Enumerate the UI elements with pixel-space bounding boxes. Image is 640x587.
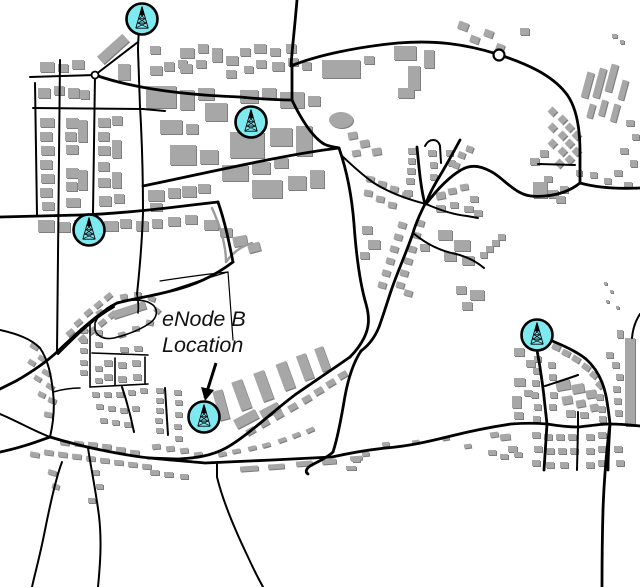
building (152, 444, 160, 450)
building (581, 72, 594, 99)
building (310, 170, 324, 188)
building (185, 215, 197, 224)
building (96, 484, 103, 489)
building (532, 460, 540, 466)
map-figure: eNode B Location (0, 0, 640, 587)
building (93, 300, 102, 309)
building (160, 120, 182, 134)
building (92, 392, 99, 397)
road (217, 463, 263, 587)
building (398, 88, 414, 98)
building (262, 442, 271, 448)
building (592, 68, 607, 99)
building (180, 48, 194, 58)
road-network (0, 0, 640, 587)
building (118, 362, 126, 368)
building (66, 145, 78, 154)
building (97, 318, 106, 327)
building (306, 427, 315, 434)
building (566, 410, 575, 417)
building (561, 395, 572, 405)
road (32, 462, 62, 587)
building (180, 64, 192, 73)
building (347, 131, 357, 139)
building (438, 230, 452, 240)
road (35, 83, 37, 215)
building (399, 269, 408, 277)
building (325, 378, 336, 388)
building (359, 139, 369, 147)
building (548, 123, 558, 133)
building (524, 390, 532, 396)
building (104, 392, 111, 397)
building (41, 174, 54, 183)
building (558, 448, 566, 454)
building (98, 132, 109, 141)
building (80, 338, 87, 343)
building (575, 399, 585, 407)
building (240, 48, 250, 56)
building (44, 449, 54, 455)
building (175, 412, 182, 417)
building (262, 88, 276, 98)
building (313, 386, 324, 396)
building (232, 448, 241, 454)
building (630, 160, 637, 167)
building (408, 66, 420, 90)
building (512, 396, 521, 408)
building (120, 408, 127, 413)
building (198, 184, 210, 193)
building (98, 146, 110, 155)
building (371, 147, 381, 155)
building (533, 416, 540, 422)
building (408, 158, 415, 164)
building (612, 362, 619, 368)
building (112, 420, 119, 425)
building (548, 107, 558, 117)
building (272, 62, 284, 71)
building (632, 134, 639, 140)
building (196, 60, 206, 68)
building (120, 347, 128, 352)
building (83, 308, 92, 317)
building (457, 151, 466, 159)
building (226, 70, 236, 78)
building (65, 132, 76, 141)
building (198, 44, 208, 53)
building (464, 444, 471, 449)
building (156, 408, 163, 413)
building (170, 145, 196, 165)
building (102, 444, 111, 450)
building (156, 428, 163, 433)
building (80, 90, 89, 99)
building (546, 462, 554, 468)
building (132, 360, 140, 366)
building (598, 406, 605, 412)
building (80, 348, 87, 353)
enodeb-marker-enodeb-3[interactable] (74, 215, 105, 246)
building (614, 170, 622, 176)
roundabout-icon (494, 50, 505, 61)
building (532, 432, 540, 438)
building (186, 124, 198, 134)
junction-node-icon (92, 72, 99, 79)
road (88, 448, 101, 587)
building (142, 464, 151, 469)
building (38, 220, 54, 232)
building (457, 21, 469, 32)
building (406, 178, 414, 184)
road (33, 108, 165, 111)
building (362, 226, 372, 234)
building (448, 187, 457, 194)
building (606, 352, 613, 358)
building (397, 221, 406, 229)
building (544, 176, 552, 182)
building (500, 433, 511, 440)
building (560, 462, 568, 468)
building (124, 422, 131, 427)
building (40, 132, 52, 141)
building (514, 348, 524, 356)
building (617, 330, 623, 338)
building (66, 182, 77, 191)
building (150, 46, 160, 54)
building (73, 318, 82, 327)
building (175, 436, 182, 441)
building (534, 404, 541, 410)
building (112, 140, 121, 158)
building (78, 170, 87, 190)
building (248, 445, 257, 451)
building (430, 174, 437, 180)
building (33, 375, 42, 383)
building (360, 252, 369, 259)
road (632, 314, 640, 338)
building (231, 379, 252, 411)
building (314, 346, 331, 372)
building (200, 150, 218, 164)
building (486, 246, 493, 252)
building (490, 431, 499, 437)
building (450, 202, 458, 208)
building (99, 196, 111, 206)
building (40, 118, 54, 127)
building (532, 380, 539, 386)
building (30, 451, 40, 457)
road (57, 60, 60, 352)
building (610, 290, 613, 293)
building (120, 293, 128, 299)
building (95, 378, 102, 383)
building (40, 188, 52, 197)
enodeb-marker-enodeb-1[interactable] (127, 4, 158, 35)
building (288, 176, 306, 190)
building (616, 306, 619, 309)
building (27, 359, 36, 367)
building (618, 80, 629, 101)
building (244, 66, 253, 73)
building (571, 383, 584, 394)
building (156, 398, 163, 403)
building (155, 418, 162, 423)
building (460, 183, 469, 190)
building (98, 162, 109, 171)
building (140, 388, 147, 393)
building (80, 370, 87, 375)
building (580, 412, 588, 418)
building (270, 128, 292, 146)
building (626, 120, 634, 126)
building (180, 474, 188, 479)
building (104, 360, 112, 366)
building (66, 118, 78, 128)
building (540, 150, 548, 157)
building (480, 252, 487, 258)
building (556, 434, 564, 440)
building (116, 392, 123, 397)
building (268, 463, 284, 469)
building (301, 394, 312, 404)
building (394, 46, 416, 60)
building (492, 240, 499, 246)
building (212, 48, 222, 62)
building (42, 202, 54, 210)
building (329, 112, 353, 128)
building (500, 454, 508, 459)
building (270, 48, 280, 56)
building (97, 34, 129, 64)
building (599, 416, 606, 422)
building (531, 392, 538, 398)
building (586, 434, 594, 440)
building (558, 115, 568, 125)
building (72, 454, 81, 460)
annotation-line1: eNode B (162, 306, 246, 332)
building (322, 60, 360, 78)
building (104, 374, 112, 380)
building (526, 360, 535, 367)
road (165, 388, 168, 435)
building (568, 434, 576, 440)
building (546, 448, 554, 454)
building (534, 446, 542, 452)
enodeb-marker-enodeb-2[interactable] (236, 107, 267, 138)
road (92, 353, 148, 355)
building (514, 452, 522, 457)
building (368, 240, 380, 249)
building (118, 376, 126, 382)
building (558, 147, 568, 157)
building (78, 120, 87, 142)
building (403, 289, 412, 297)
building (589, 403, 598, 411)
road (30, 75, 95, 77)
building (620, 148, 628, 154)
building (352, 149, 361, 156)
building (88, 498, 95, 503)
building (114, 194, 124, 203)
building (586, 103, 595, 118)
building (381, 269, 390, 277)
building (112, 116, 122, 125)
building (205, 103, 227, 121)
building (565, 155, 575, 165)
building (462, 302, 472, 310)
building (393, 233, 402, 241)
building (38, 88, 50, 98)
building (428, 150, 436, 156)
building (95, 366, 102, 371)
building (116, 447, 125, 453)
building (128, 390, 135, 395)
building (620, 40, 624, 44)
building (388, 201, 397, 208)
building (612, 34, 617, 38)
road (93, 75, 95, 213)
building (407, 168, 415, 174)
annotation-line2: Location (162, 332, 246, 358)
building (302, 62, 311, 70)
building (308, 96, 320, 106)
building (108, 406, 115, 411)
building (382, 442, 389, 447)
building (58, 222, 70, 232)
enodeb-marker-enodeb-4[interactable] (189, 402, 220, 433)
building (514, 412, 523, 419)
building (586, 448, 594, 454)
building (548, 362, 555, 368)
building (488, 450, 496, 455)
building (95, 342, 102, 347)
building (66, 168, 78, 178)
building (616, 460, 624, 466)
building (508, 446, 517, 452)
building (58, 452, 67, 458)
building (152, 219, 162, 228)
building (204, 220, 218, 230)
building (134, 346, 142, 351)
building (604, 282, 607, 285)
building (114, 460, 123, 466)
building (148, 190, 164, 201)
building (385, 257, 394, 265)
building (548, 139, 558, 149)
building (226, 56, 238, 65)
building (377, 281, 386, 289)
building (549, 374, 556, 380)
building (454, 240, 470, 251)
building (514, 378, 525, 386)
map-canvas (0, 0, 640, 587)
building (364, 189, 373, 196)
building (96, 404, 103, 409)
building (168, 188, 180, 198)
building (66, 198, 80, 207)
building (606, 300, 609, 303)
enodeb-marker-enodeb-5[interactable] (522, 320, 553, 351)
building (483, 29, 494, 39)
building (104, 221, 118, 231)
building (40, 62, 54, 72)
enodeb-annotation: eNode B Location (162, 306, 246, 358)
building (292, 432, 301, 439)
building (175, 400, 182, 405)
building (296, 353, 314, 381)
road (538, 164, 575, 165)
building (174, 424, 181, 429)
building (470, 290, 484, 300)
building (150, 66, 162, 75)
building (558, 131, 568, 141)
building (120, 219, 131, 228)
building (72, 60, 84, 69)
building (465, 145, 474, 153)
building (430, 162, 437, 168)
building (615, 410, 622, 416)
building (40, 160, 52, 169)
building (253, 370, 274, 402)
building (252, 180, 282, 198)
building (164, 472, 173, 477)
building (420, 244, 429, 251)
building (164, 62, 174, 71)
building (68, 88, 79, 98)
building (376, 195, 385, 202)
building (586, 462, 594, 468)
building (103, 292, 112, 301)
building (364, 56, 374, 64)
building (614, 398, 621, 404)
building (610, 104, 620, 123)
building (408, 148, 416, 154)
building (520, 28, 529, 35)
building (180, 448, 188, 454)
building (337, 370, 348, 380)
building (456, 286, 466, 294)
building (598, 432, 606, 438)
building (182, 186, 196, 197)
building (598, 99, 608, 116)
building (98, 118, 110, 127)
building (150, 470, 159, 475)
building (37, 391, 45, 398)
building (424, 50, 434, 68)
road (417, 147, 425, 204)
building (128, 462, 137, 468)
building (278, 437, 287, 443)
building (98, 178, 110, 187)
building (287, 402, 298, 412)
building (100, 418, 107, 423)
building (625, 338, 635, 426)
building (174, 390, 181, 395)
building (133, 374, 141, 380)
building (132, 406, 139, 411)
building (565, 139, 575, 149)
building (596, 394, 603, 400)
building (276, 361, 296, 391)
building (47, 397, 56, 404)
building (464, 206, 473, 212)
building (604, 64, 618, 93)
building (352, 458, 360, 462)
building (44, 411, 53, 417)
building (395, 281, 404, 289)
building (166, 446, 174, 452)
